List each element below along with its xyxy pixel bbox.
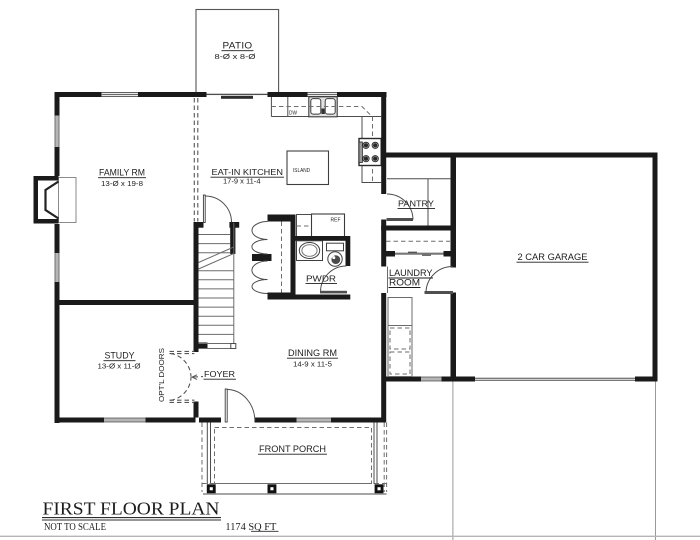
svg-text:2 CAR GARAGE: 2 CAR GARAGE	[518, 252, 588, 263]
svg-text:PWDR: PWDR	[306, 275, 336, 284]
svg-text:ISLAND: ISLAND	[293, 168, 310, 174]
svg-text:EAT-IN KITCHEN: EAT-IN KITCHEN	[212, 167, 284, 177]
svg-text:13-Ø x 19-8: 13-Ø x 19-8	[101, 181, 143, 188]
svg-text:DINING RM: DINING RM	[288, 348, 337, 359]
svg-text:8-Ø x 8-Ø: 8-Ø x 8-Ø	[215, 54, 257, 61]
svg-text:PANTRY: PANTRY	[398, 199, 434, 209]
svg-text:REF: REF	[331, 218, 341, 224]
svg-text:FRONT PORCH: FRONT PORCH	[259, 444, 326, 454]
svg-text:14-9 x 11-5: 14-9 x 11-5	[293, 362, 332, 369]
svg-text:13-Ø x 11-Ø: 13-Ø x 11-Ø	[98, 364, 142, 371]
svg-text:OPT'L DOORS: OPT'L DOORS	[159, 348, 166, 402]
svg-text:LAUNDRY: LAUNDRY	[389, 268, 433, 278]
svg-text:PATIO: PATIO	[223, 41, 253, 51]
svg-text:FIRST FLOOR PLAN: FIRST FLOOR PLAN	[43, 499, 220, 519]
svg-text:FAMILY RM: FAMILY RM	[99, 168, 145, 179]
svg-text:ROOM: ROOM	[389, 278, 420, 288]
svg-text:FOYER: FOYER	[204, 369, 235, 379]
svg-text:17-9 x 11-4: 17-9 x 11-4	[223, 178, 261, 185]
svg-text:DW: DW	[289, 111, 297, 117]
svg-text:STUDY: STUDY	[105, 351, 136, 362]
svg-text:NOT TO SCALE: NOT TO SCALE	[44, 522, 106, 533]
